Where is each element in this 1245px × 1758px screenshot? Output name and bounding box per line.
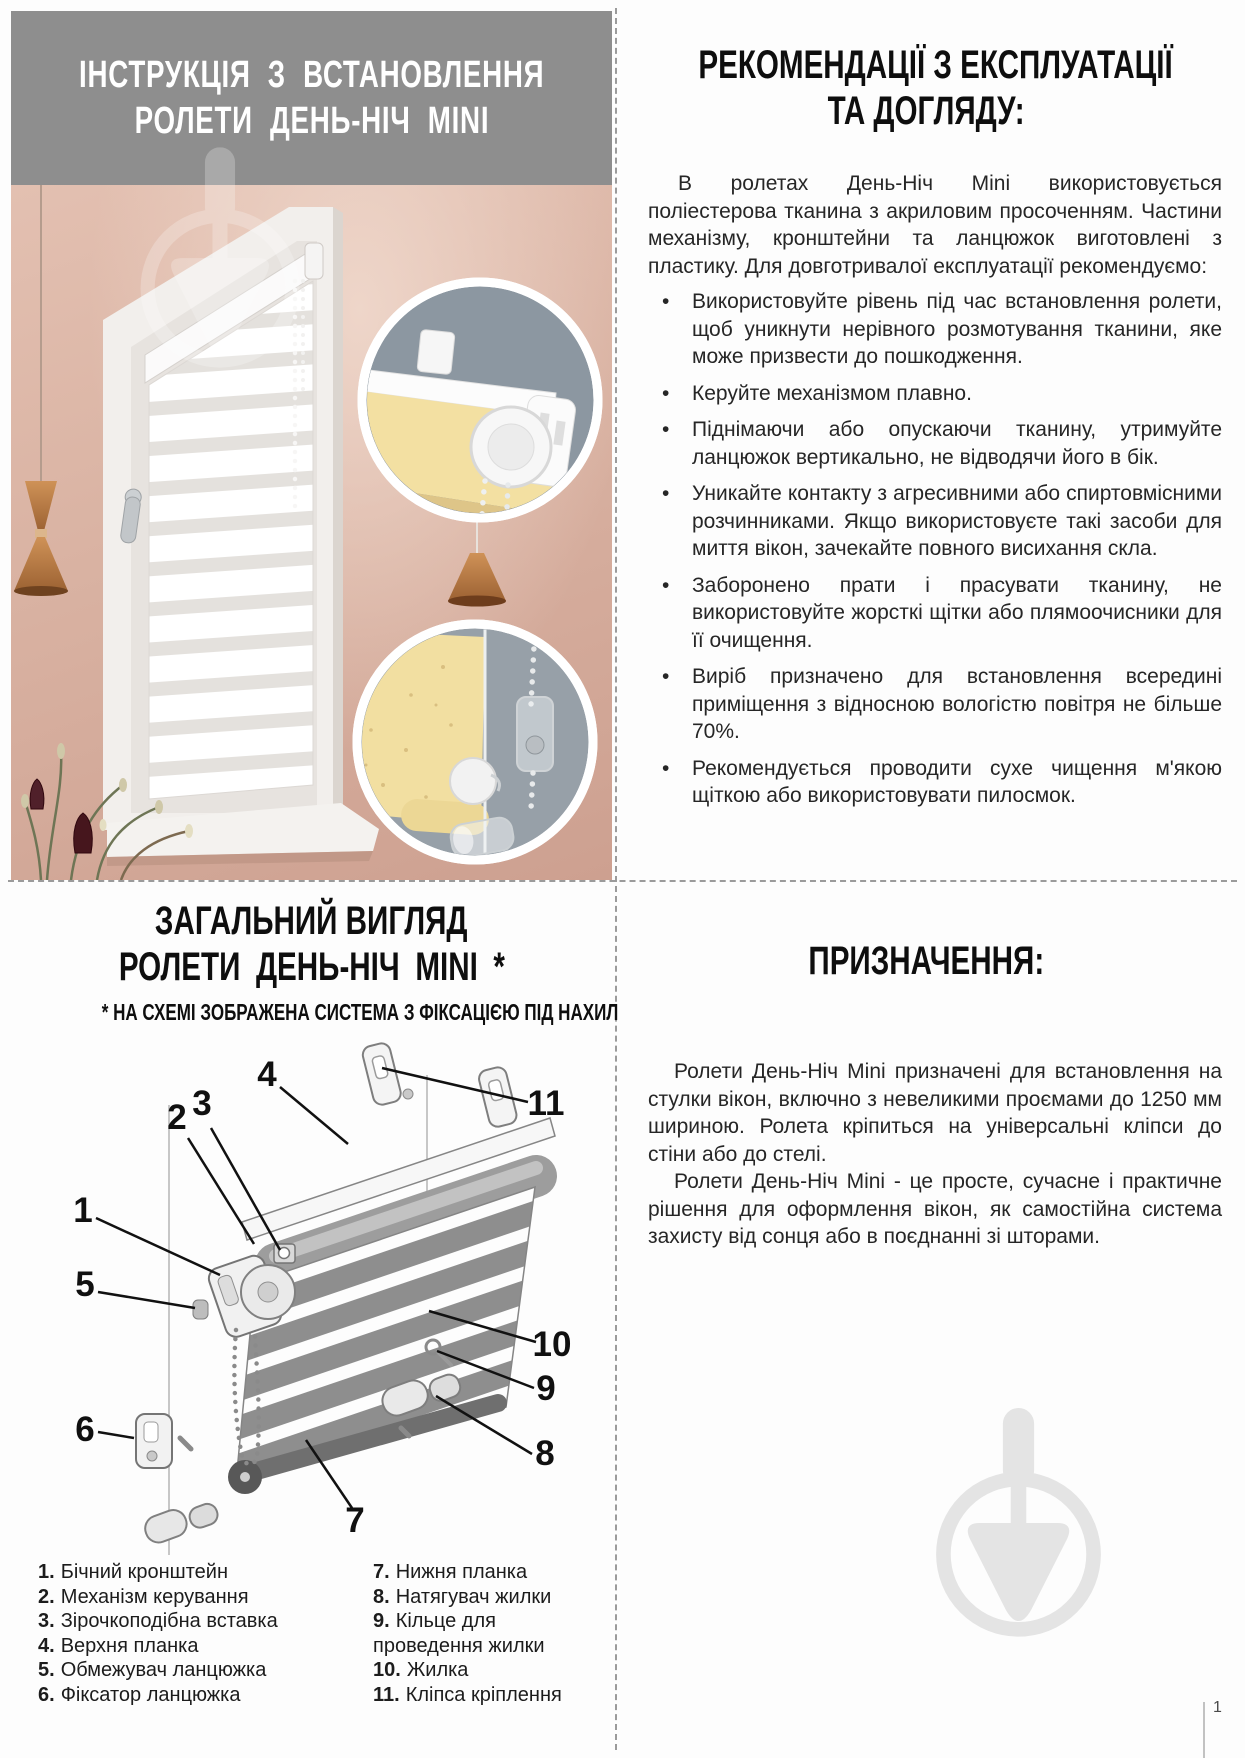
- legend-item: 4.Верхня планка: [38, 1634, 338, 1659]
- page-number: 1: [1213, 1699, 1222, 1717]
- callout-9: 9: [536, 1369, 555, 1409]
- overview-title-line1: ЗАГАЛЬНИЙ ВИГЛЯД: [155, 898, 468, 944]
- callout-2: 2: [167, 1098, 186, 1138]
- legend-item: 10.Жилка: [373, 1658, 611, 1683]
- care-bullet-list: •Використовуйте рівень під час встановле…: [648, 288, 1222, 810]
- legend-item: 8.Натягувач жилки: [373, 1585, 611, 1610]
- bullet-marker: •: [662, 755, 669, 783]
- care-bullet-item: •Заборонено прати і прасувати тканину, н…: [648, 572, 1222, 655]
- install-header-line1: ІНСТРУКЦІЯ З ВСТАНОВЛЕННЯ: [79, 53, 544, 97]
- pendant-lamp: [448, 517, 506, 607]
- install-header-line2: РОЛЕТИ ДЕНЬ-НІЧ MINI: [134, 99, 489, 143]
- bullet-marker: •: [662, 480, 669, 508]
- callout-7: 7: [345, 1501, 364, 1541]
- care-body: В ролетах День-Ніч Mini використовується…: [648, 170, 1222, 819]
- bullet-marker: •: [662, 663, 669, 691]
- care-intro: В ролетах День-Ніч Mini використовується…: [648, 170, 1222, 280]
- overview-subtitle: * НА СХЕМІ ЗОБРАЖЕНА СИСТЕМА З ФІКСАЦІЄЮ…: [102, 998, 619, 1026]
- callout-5: 5: [75, 1265, 94, 1305]
- brand-watermark-icon: [921, 1408, 1116, 1642]
- horizontal-divider: [8, 880, 1237, 882]
- diagram-area: 1 2 3 4 5 6 7 8 9 10 11: [30, 1030, 600, 1555]
- care-title-line1: РЕКОМЕНДАЦІЇ З ЕКСПЛУАТАЦІЇ: [698, 42, 1172, 88]
- vertical-divider: [615, 8, 617, 1750]
- callout-11: 11: [528, 1084, 565, 1124]
- legend-left-column: 1.Бічний кронштейн 2.Механізм керування …: [38, 1560, 338, 1707]
- tulips: [30, 779, 92, 853]
- bullet-marker: •: [662, 572, 669, 600]
- legend-item: 5.Обмежувач ланцюжка: [38, 1658, 338, 1683]
- care-bullet-item: •Керуйте механізмом плавно.: [648, 380, 1222, 408]
- purpose-body: Ролети День-Ніч Mini призначені для вста…: [648, 1058, 1222, 1251]
- care-bullet-item: •Рекомендується проводити сухе чищення м…: [648, 755, 1222, 810]
- callout-3: 3: [192, 1084, 211, 1124]
- legend-item: 7.Нижня планка: [373, 1560, 611, 1585]
- care-bullet-item: •Виріб призначено для встановлення всере…: [648, 663, 1222, 746]
- care-title: РЕКОМЕНДАЦІЇ З ЕКСПЛУАТАЦІЇ ТА ДОГЛЯДУ:: [615, 42, 1237, 134]
- callout-10: 10: [533, 1325, 572, 1365]
- care-bullet-item: •Піднімаючи або опускаючи тканину, утрим…: [648, 416, 1222, 471]
- legend-right-column: 7.Нижня планка 8.Натягувач жилки 9.Кільц…: [373, 1560, 611, 1707]
- page-number-rule: [1203, 1702, 1205, 1758]
- purpose-paragraph-1: Ролети День-Ніч Mini призначені для вста…: [648, 1058, 1222, 1168]
- chain-fixator: [517, 697, 553, 771]
- legend-item: 11.Кліпса кріплення: [373, 1683, 611, 1708]
- tensioner-disc: [450, 758, 496, 804]
- purpose-paragraph-2: Ролети День-Ніч Mini - це просте, сучасн…: [648, 1168, 1222, 1251]
- copper-lamp: [14, 185, 68, 596]
- overview-title: ЗАГАЛЬНИЙ ВИГЛЯД РОЛЕТИ ДЕНЬ-НІЧ MINI * …: [11, 898, 612, 1026]
- legend-item: 3.Зірочкоподібна вставка: [38, 1609, 338, 1634]
- instruction-page: ІНСТРУКЦІЯ З ВСТАНОВЛЕННЯ РОЛЕТИ ДЕНЬ-НІ…: [0, 0, 1245, 1758]
- care-title-line2: ТА ДОГЛЯДУ:: [827, 88, 1024, 134]
- callout-6: 6: [75, 1410, 94, 1450]
- care-bullet-item: •Використовуйте рівень під час встановле…: [648, 288, 1222, 371]
- legend-item: 9.Кільце для проведення жилки: [373, 1609, 611, 1658]
- roller-blind-diagram: [30, 1030, 600, 1555]
- callout-1: 1: [73, 1191, 92, 1231]
- inset-fixator-closeup: [353, 624, 593, 861]
- brand-watermark-icon: [126, 147, 314, 373]
- legend-item: 6.Фіксатор ланцюжка: [38, 1683, 338, 1708]
- bullet-marker: •: [662, 416, 669, 444]
- care-bullet-item: •Уникайте контакту з агресивними або спи…: [648, 480, 1222, 563]
- overview-title-line2: РОЛЕТИ ДЕНЬ-НІЧ MINI *: [118, 944, 504, 990]
- purpose-title: ПРИЗНАЧЕННЯ:: [615, 938, 1237, 984]
- bullet-marker: •: [662, 288, 669, 316]
- legend-item: 1.Бічний кронштейн: [38, 1560, 338, 1585]
- bullet-marker: •: [662, 380, 669, 408]
- callout-4: 4: [257, 1055, 276, 1095]
- callout-8: 8: [535, 1434, 554, 1474]
- legend-item: 2.Механізм керування: [38, 1585, 338, 1610]
